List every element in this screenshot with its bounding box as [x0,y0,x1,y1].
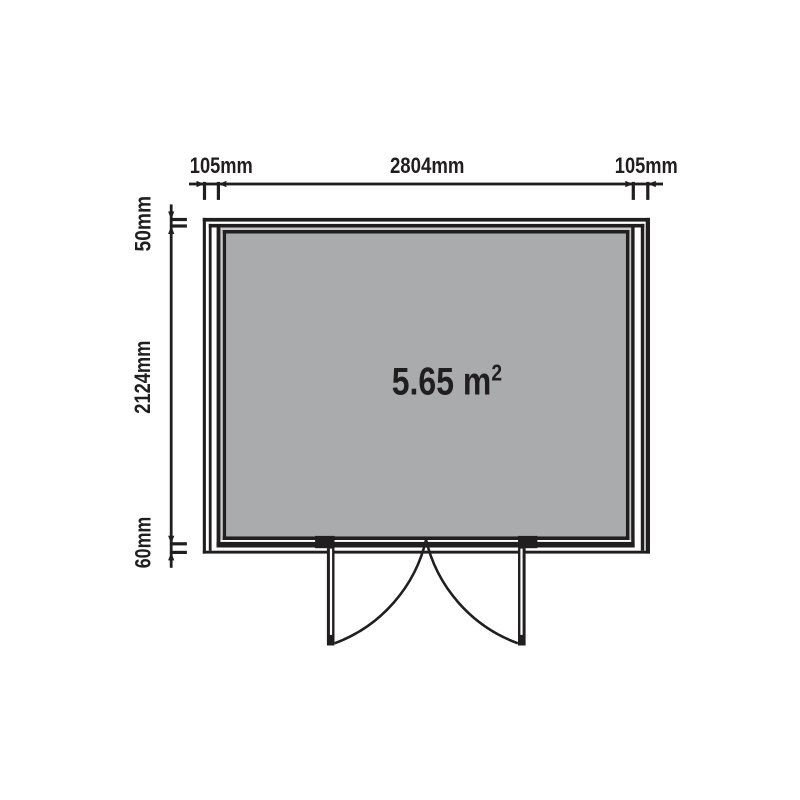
svg-text:2124mm: 2124mm [130,341,155,414]
svg-text:60mm: 60mm [130,517,155,569]
svg-text:105mm: 105mm [190,153,253,178]
svg-text:50mm: 50mm [130,196,155,252]
svg-text:105mm: 105mm [615,153,678,178]
svg-text:2804mm: 2804mm [390,153,465,178]
svg-text:5.65 m2: 5.65 m2 [392,359,502,403]
